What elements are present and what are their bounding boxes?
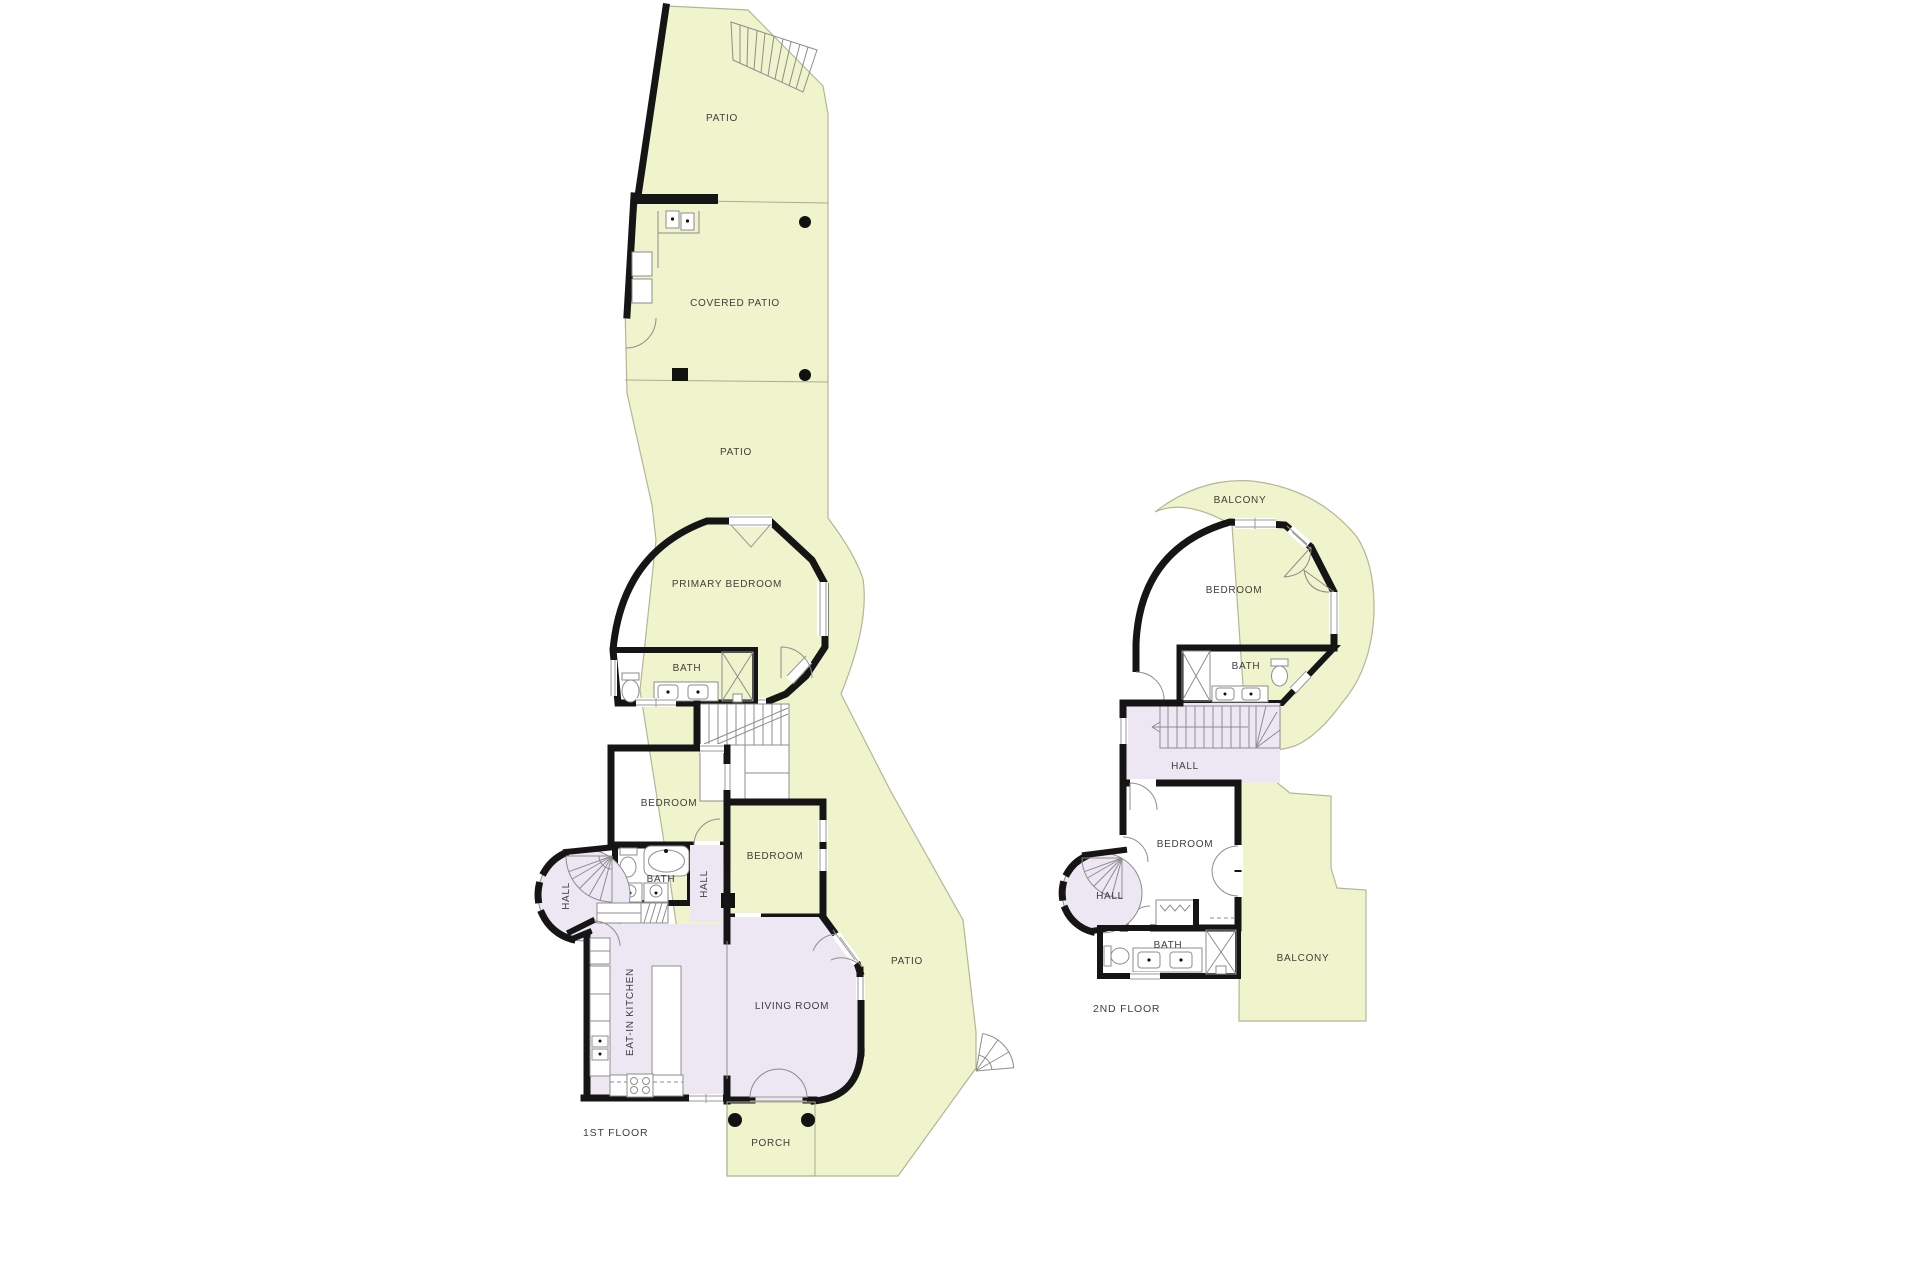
balcony-right-area	[1239, 753, 1366, 1021]
floor-plan-canvas: PATIO COVERED PATIO PATIO PRIMARY BEDROO…	[0, 0, 1920, 1280]
room-label-hall-corridor: HALL	[699, 870, 710, 898]
second-floor-plan: BALCONY BEDROOM BATH HALL BEDROOM HALL B…	[1062, 481, 1374, 1021]
room-label-patio-mid: PATIO	[720, 447, 752, 458]
room-label-primary-bath: BATH	[673, 663, 702, 674]
room-label-porch: PORCH	[751, 1138, 791, 1149]
room-label-balcony-right: BALCONY	[1277, 953, 1330, 964]
floor-plan-page: PATIO COVERED PATIO PATIO PRIMARY BEDROO…	[0, 0, 1920, 1280]
room-label-covered-patio: COVERED PATIO	[690, 298, 780, 309]
room-label-bedroom-left: BEDROOM	[641, 798, 698, 809]
room-label-bedroom-top: BEDROOM	[1206, 585, 1263, 596]
room-label-hall-tower-2f: HALL	[1096, 891, 1124, 902]
hatched-stair	[597, 903, 668, 923]
room-label-patio-top: PATIO	[706, 113, 738, 124]
floor-label-second: 2ND FLOOR	[1093, 1003, 1160, 1015]
floor-label-first: 1ST FLOOR	[583, 1127, 648, 1139]
exterior-fan-stairs	[976, 1034, 1014, 1071]
room-label-patio-right: PATIO	[891, 956, 923, 967]
room-label-primary-bedroom: PRIMARY BEDROOM	[672, 579, 782, 590]
room-label-bath-upper: BATH	[1232, 661, 1261, 672]
room-label-hall-tower: HALL	[561, 882, 572, 910]
room-label-bath-small: BATH	[647, 874, 676, 885]
room-label-balcony-top: BALCONY	[1214, 495, 1267, 506]
room-label-bedroom-lower: BEDROOM	[1157, 839, 1214, 850]
room-label-hall-stairs: HALL	[1171, 761, 1199, 772]
room-label-living-room: LIVING ROOM	[755, 1001, 829, 1012]
room-label-eat-in-kitchen: EAT-IN KITCHEN	[625, 968, 636, 1056]
first-floor-plan: PATIO COVERED PATIO PATIO PRIMARY BEDROO…	[538, 6, 1014, 1176]
room-label-bath-lower: BATH	[1154, 940, 1183, 951]
room-label-bedroom-right: BEDROOM	[747, 851, 804, 862]
